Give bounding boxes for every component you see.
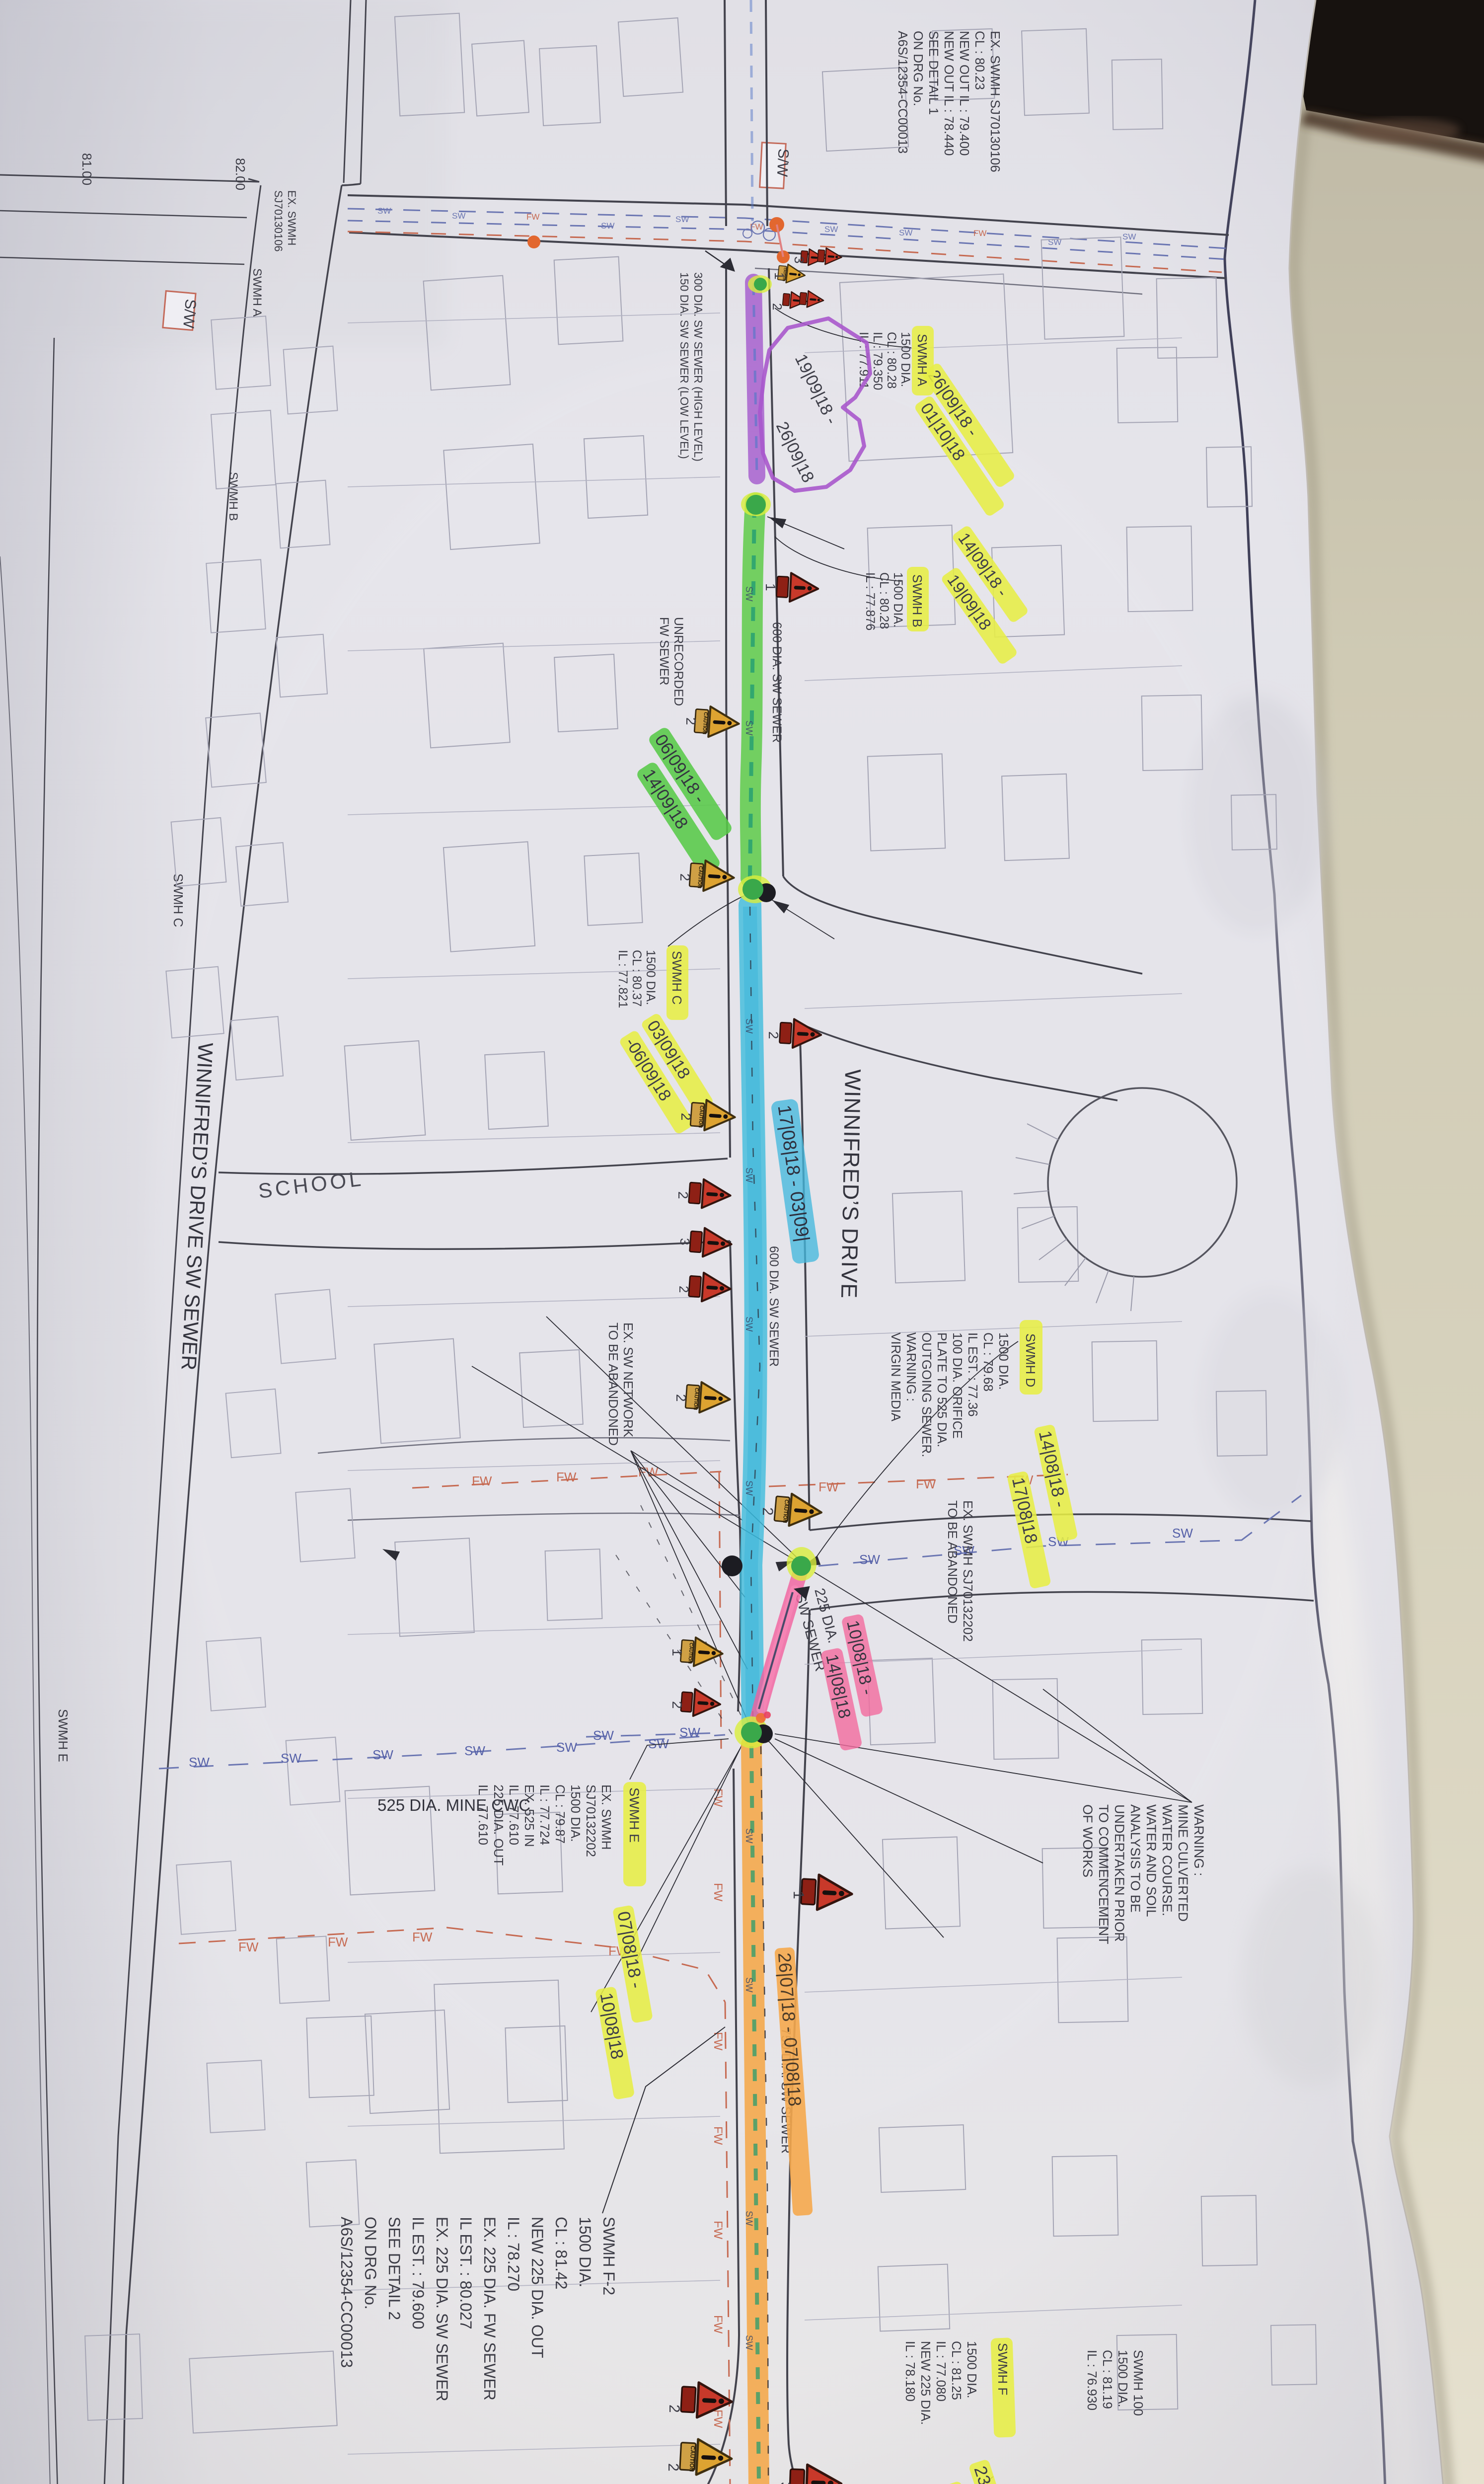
svg-text:SW: SW: [743, 1167, 754, 1183]
svg-text:CL : 80.28: CL : 80.28: [885, 332, 898, 388]
svg-text:FW: FW: [556, 1470, 577, 1484]
svg-text:NEW OUT IL : 78.440: NEW OUT IL : 78.440: [942, 31, 957, 155]
svg-text:TO BE ABANDONED: TO BE ABANDONED: [945, 1500, 960, 1624]
svg-text:SW: SW: [593, 1728, 614, 1743]
svg-text:SW: SW: [743, 2335, 754, 2350]
svg-text:OF WORKS: OF WORKS: [1080, 1804, 1095, 1877]
svg-text:NEW 225 DIA. OUT: NEW 225 DIA. OUT: [528, 2217, 546, 2358]
svg-text:100 DIA. ORIFICE: 100 DIA. ORIFICE: [950, 1332, 965, 1439]
svg-text:FW: FW: [328, 1935, 348, 1949]
svg-text:1500 DIA.: 1500 DIA.: [1115, 2350, 1130, 2407]
svg-text:SWMH F: SWMH F: [995, 2343, 1010, 2395]
svg-text:FW: FW: [472, 1474, 492, 1488]
svg-text:SW: SW: [377, 206, 391, 216]
svg-text:FW: FW: [818, 1479, 839, 1494]
svg-text:150 DIA. SW SEWER (LOW LEVEL): 150 DIA. SW SEWER (LOW LEVEL): [678, 272, 691, 459]
svg-text:ON DRG No.: ON DRG No.: [362, 2217, 379, 2310]
svg-text:SW: SW: [281, 1751, 301, 1766]
svg-text:SW: SW: [679, 1725, 700, 1740]
svg-text:CL : 79.87: CL : 79.87: [553, 1785, 568, 1844]
svg-text:1500 DIA.: 1500 DIA.: [891, 572, 905, 627]
svg-text:IL : 78.270: IL : 78.270: [505, 2217, 522, 2291]
svg-text:WATER AND SOIL: WATER AND SOIL: [1144, 1804, 1159, 1917]
svg-text:1: 1: [763, 583, 778, 591]
svg-text:SEE DETAIL 2: SEE DETAIL 2: [385, 2217, 403, 2320]
svg-text:FW SEWER: FW SEWER: [657, 617, 671, 686]
svg-text:IL : 77.724: IL : 77.724: [537, 1785, 552, 1845]
svg-text:FW: FW: [711, 2032, 725, 2051]
svg-text:2: 2: [766, 1031, 781, 1039]
svg-text:81.00: 81.00: [79, 153, 94, 185]
svg-text:2: 2: [669, 1701, 685, 1709]
svg-text:ANALYSIS TO BE: ANALYSIS TO BE: [1128, 1804, 1143, 1913]
svg-text:EX. SWMH SJ70130106: EX. SWMH SJ70130106: [988, 31, 1003, 172]
svg-text:SWMH B: SWMH B: [226, 472, 240, 521]
svg-text:SWMH E: SWMH E: [627, 1787, 642, 1843]
svg-text:1500 DIA.: 1500 DIA.: [965, 2341, 979, 2399]
svg-text:OUTGOING SEWER.: OUTGOING SEWER.: [919, 1332, 934, 1457]
svg-text:SW: SW: [743, 1977, 754, 1993]
svg-text:1500 DIA.: 1500 DIA.: [644, 950, 658, 1005]
svg-text:3: 3: [677, 1238, 692, 1245]
svg-text:TO BE ABANDONED: TO BE ABANDONED: [606, 1322, 621, 1446]
svg-text:SW: SW: [743, 1317, 754, 1332]
svg-text:SEE DETAIL 1: SEE DETAIL 1: [926, 31, 941, 115]
svg-text:WATER COURSE.: WATER COURSE.: [1160, 1804, 1175, 1916]
svg-text:1500 DIA.: 1500 DIA.: [898, 332, 912, 387]
svg-text:1: 1: [790, 1891, 807, 1899]
svg-text:SW: SW: [1122, 232, 1136, 241]
svg-text:FW: FW: [916, 1476, 936, 1491]
svg-text:3: 3: [777, 2482, 794, 2484]
svg-text:1: 1: [772, 272, 787, 279]
svg-text:600 DIA. SW SEWER: 600 DIA. SW SEWER: [767, 1246, 781, 1367]
svg-text:SWMH D: SWMH D: [1023, 1333, 1038, 1387]
svg-text:FW: FW: [973, 229, 986, 238]
svg-text:SWMH B: SWMH B: [910, 574, 925, 627]
svg-text:2: 2: [666, 2405, 682, 2413]
svg-text:IL EST. : 80.027: IL EST. : 80.027: [457, 2217, 475, 2329]
svg-text:SW: SW: [824, 225, 838, 234]
svg-text:SWMH C: SWMH C: [669, 951, 684, 1005]
svg-text:SJ70130106: SJ70130106: [272, 190, 285, 252]
svg-text:FW: FW: [711, 2126, 725, 2145]
svg-text:SW: SW: [675, 215, 689, 224]
svg-text:A6S/12354-CC00013: A6S/12354-CC00013: [895, 31, 910, 154]
svg-text:S/W: S/W: [774, 148, 792, 177]
svg-text:CL : 80.28: CL : 80.28: [877, 572, 891, 629]
svg-text:CL : 79.68: CL : 79.68: [981, 1332, 996, 1392]
svg-text:SWMH A: SWMH A: [915, 334, 930, 387]
svg-text:WARNING :: WARNING :: [1191, 1804, 1206, 1876]
svg-text:TO COMMENCEMENT: TO COMMENCEMENT: [1096, 1804, 1111, 1944]
svg-text:SW: SW: [372, 1747, 393, 1762]
svg-text:SW: SW: [743, 1480, 754, 1496]
svg-text:EX. 225 DIA. FW SEWER: EX. 225 DIA. FW SEWER: [481, 2217, 499, 2401]
svg-text:A6S/12354-CC00013: A6S/12354-CC00013: [338, 2217, 356, 2368]
svg-text:1: 1: [669, 1648, 685, 1656]
svg-text:IL : 79.350: IL : 79.350: [871, 332, 885, 390]
svg-text:2: 2: [676, 1286, 691, 1293]
svg-text:FW: FW: [711, 2409, 725, 2428]
svg-text:EX. 225 DIA. SW SEWER: EX. 225 DIA. SW SEWER: [433, 2217, 451, 2402]
svg-text:SW: SW: [743, 2211, 754, 2226]
svg-text:1500 DIA.: 1500 DIA.: [576, 2217, 594, 2287]
svg-text:SW: SW: [743, 1828, 754, 1844]
svg-text:CL : 80.23: CL : 80.23: [972, 31, 987, 90]
svg-text:NEW 225 DIA.: NEW 225 DIA.: [918, 2341, 933, 2425]
svg-text:WINNIFRED’S DRIVE: WINNIFRED’S DRIVE: [836, 1069, 866, 1299]
svg-text:SW: SW: [743, 720, 754, 736]
svg-text:FW: FW: [711, 2315, 725, 2334]
svg-text:FW: FW: [412, 1930, 433, 1944]
svg-text:2: 2: [677, 873, 693, 881]
svg-text:S/W: S/W: [180, 299, 200, 329]
svg-text:IL : 78.180: IL : 78.180: [903, 2341, 918, 2402]
svg-text:EX. SW NETWORK: EX. SW NETWORK: [621, 1322, 636, 1438]
svg-text:SW: SW: [452, 211, 465, 221]
svg-text:2: 2: [678, 1113, 694, 1121]
svg-text:SW: SW: [899, 228, 912, 237]
svg-text:SW: SW: [743, 1018, 754, 1034]
svg-text:600 DIA. SW SEWER: 600 DIA. SW SEWER: [770, 622, 784, 743]
svg-text:2: 2: [759, 1507, 776, 1516]
svg-text:1500 DIA.: 1500 DIA.: [568, 1785, 583, 1842]
svg-text:IL : 76.930: IL : 76.930: [1085, 2350, 1100, 2410]
svg-text:PLATE TO 525 DIA.: PLATE TO 525 DIA.: [935, 1332, 950, 1447]
svg-text:NEW OUT IL : 79.400: NEW OUT IL : 79.400: [957, 31, 972, 155]
svg-text:IL : 77.876: IL : 77.876: [863, 572, 877, 630]
svg-text:CL : 81.25: CL : 81.25: [949, 2341, 964, 2400]
svg-text:IL : 77.610: IL : 77.610: [476, 1785, 491, 1845]
svg-text:82.00: 82.00: [233, 158, 248, 190]
svg-text:EX. SWMH: EX. SWMH: [286, 190, 298, 245]
svg-text:SW: SW: [601, 221, 614, 231]
svg-text:ON DRG No.: ON DRG No.: [911, 31, 926, 106]
svg-text:FW: FW: [238, 1940, 259, 1954]
svg-text:SWMH A: SWMH A: [250, 268, 264, 316]
svg-text:SW: SW: [859, 1552, 880, 1567]
svg-text:SW: SW: [464, 1743, 485, 1758]
svg-text:FW: FW: [526, 212, 539, 222]
svg-text:SWMH 100: SWMH 100: [1131, 2350, 1146, 2416]
svg-text:CL : 80.37: CL : 80.37: [630, 950, 644, 1007]
svg-text:300 DIA. SW SEWER (HIGH LEVEL): 300 DIA. SW SEWER (HIGH LEVEL): [692, 272, 705, 462]
svg-text:SWMH E: SWMH E: [56, 1709, 71, 1762]
svg-text:225 DIA. OUT: 225 DIA. OUT: [491, 1785, 506, 1865]
svg-text:2: 2: [673, 1394, 689, 1402]
svg-text:IL : 77.821: IL : 77.821: [616, 950, 630, 1008]
svg-text:IL EST. : 77.36: IL EST. : 77.36: [965, 1332, 980, 1417]
svg-text:CL : 81.19: CL : 81.19: [1100, 2350, 1115, 2409]
svg-text:IL EST. : 79.600: IL EST. : 79.600: [409, 2217, 427, 2329]
svg-text:3: 3: [792, 256, 807, 263]
svg-text:FW: FW: [711, 2221, 725, 2240]
svg-text:FW: FW: [711, 1883, 725, 1902]
svg-text:SW: SW: [189, 1755, 210, 1770]
svg-text:SW: SW: [743, 586, 754, 602]
svg-text:2: 2: [683, 717, 699, 725]
svg-text:IL : 77.610: IL : 77.610: [507, 1785, 521, 1845]
svg-text:2: 2: [675, 1191, 691, 1199]
svg-text:UNRECORDED: UNRECORDED: [671, 617, 685, 706]
svg-text:VIRGIN MEDIA: VIRGIN MEDIA: [889, 1332, 903, 1422]
svg-text:SJ70132202: SJ70132202: [584, 1785, 598, 1857]
svg-text:EX. SWMH SJ70132202: EX. SWMH SJ70132202: [961, 1500, 975, 1642]
svg-text:SW: SW: [1172, 1526, 1193, 1541]
svg-text:MINE CULVERTED: MINE CULVERTED: [1176, 1804, 1190, 1922]
svg-text:1500 DIA.: 1500 DIA.: [996, 1332, 1011, 1390]
svg-text:UNDERTAKEN PRIOR: UNDERTAKEN PRIOR: [1112, 1804, 1127, 1942]
svg-text:EX. 525 IN: EX. 525 IN: [522, 1785, 537, 1847]
svg-text:2: 2: [665, 2463, 681, 2472]
svg-text:2: 2: [770, 303, 785, 310]
svg-text:SW: SW: [556, 1740, 577, 1755]
svg-text:EX. SWMH: EX. SWMH: [599, 1785, 614, 1850]
svg-text:IL : 77.080: IL : 77.080: [934, 2341, 949, 2402]
svg-text:WARNING :: WARNING :: [904, 1332, 919, 1401]
svg-text:SWMH F-2: SWMH F-2: [600, 2217, 618, 2295]
svg-text:CL : 81.42: CL : 81.42: [552, 2217, 570, 2289]
svg-text:SWMH C: SWMH C: [171, 873, 186, 927]
